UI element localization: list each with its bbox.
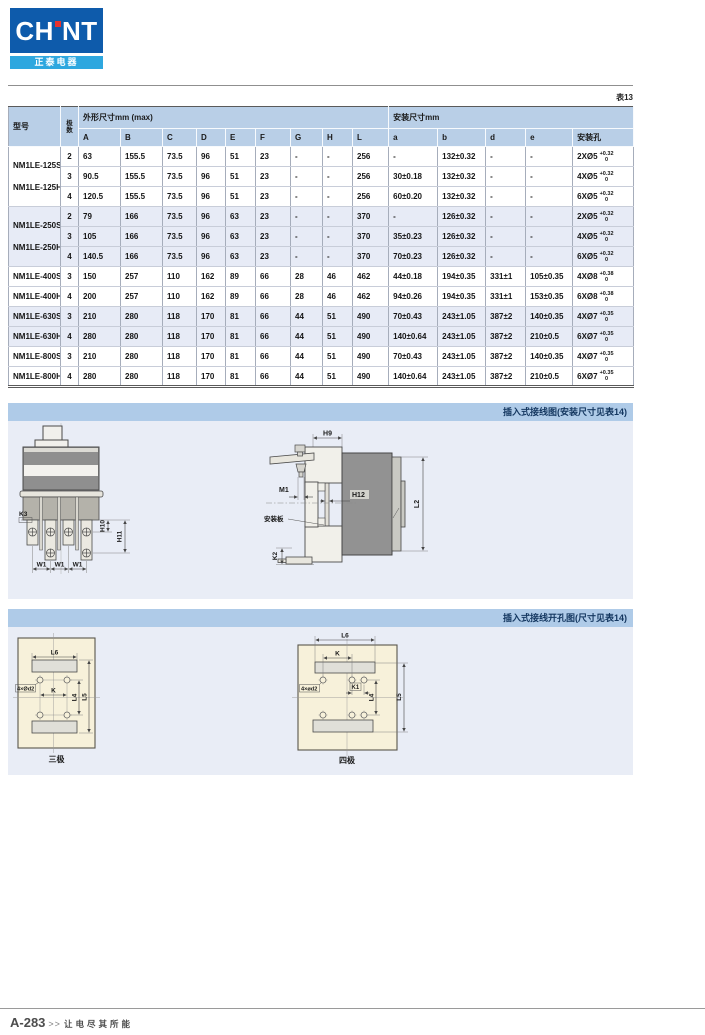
value-cell: 150 bbox=[79, 267, 121, 287]
hole-cell: 4XØ7+0.350 bbox=[573, 307, 634, 327]
value-cell: 490 bbox=[353, 367, 389, 387]
hole-cell: 4XØ5+0.320 bbox=[573, 227, 634, 247]
value-cell: 73.5 bbox=[163, 167, 197, 187]
value-cell: 140±0.35 bbox=[526, 307, 573, 327]
value-cell: 23 bbox=[256, 147, 291, 167]
dim-label-k1: K1 bbox=[352, 685, 360, 691]
value-cell: 200 bbox=[79, 287, 121, 307]
value-cell: 118 bbox=[163, 367, 197, 387]
value-cell: 132±0.32 bbox=[438, 147, 486, 167]
value-cell: 23 bbox=[256, 167, 291, 187]
value-cell: 51 bbox=[226, 147, 256, 167]
value-cell: - bbox=[291, 227, 323, 247]
model-cell: NM1LE-250SNM1LE-250H bbox=[9, 207, 61, 267]
value-cell: 81 bbox=[226, 367, 256, 387]
col-header-poles: 极 数 bbox=[61, 107, 79, 147]
value-cell: - bbox=[323, 167, 353, 187]
model-cell: NM1LE-800H bbox=[9, 367, 61, 387]
value-cell: 63 bbox=[79, 147, 121, 167]
value-cell: 331±1 bbox=[486, 287, 526, 307]
value-cell: 51 bbox=[323, 307, 353, 327]
value-cell: 46 bbox=[323, 267, 353, 287]
value-cell: 63 bbox=[226, 247, 256, 267]
value-cell: 120.5 bbox=[79, 187, 121, 207]
hole-cell: 6XØ7+0.350 bbox=[573, 367, 634, 387]
value-cell: - bbox=[526, 227, 573, 247]
table-row: 310516673.5966323--37035±0.23126±0.32--4… bbox=[9, 227, 634, 247]
value-cell: 166 bbox=[121, 227, 163, 247]
poles-cell: 4 bbox=[61, 247, 79, 267]
value-cell: 73.5 bbox=[163, 247, 197, 267]
value-cell: - bbox=[323, 147, 353, 167]
value-cell: - bbox=[486, 167, 526, 187]
value-cell: 44 bbox=[291, 307, 323, 327]
value-cell: 66 bbox=[256, 327, 291, 347]
hole-cell: 4XØ7+0.350 bbox=[573, 347, 634, 367]
value-cell: 73.5 bbox=[163, 227, 197, 247]
value-cell: 70±0.43 bbox=[389, 307, 438, 327]
col-header-d: d bbox=[486, 129, 526, 147]
hole-cell: 6XØ5+0.320 bbox=[573, 187, 634, 207]
value-cell: 170 bbox=[197, 327, 226, 347]
value-cell: 60±0.20 bbox=[389, 187, 438, 207]
value-cell: - bbox=[486, 247, 526, 267]
value-cell: - bbox=[291, 247, 323, 267]
dim-label-l5: L5 bbox=[396, 693, 403, 701]
value-cell: 155.5 bbox=[121, 187, 163, 207]
value-cell: - bbox=[389, 147, 438, 167]
col-header-a: a bbox=[389, 129, 438, 147]
value-cell: 162 bbox=[197, 287, 226, 307]
value-cell: 280 bbox=[79, 327, 121, 347]
value-cell: 210 bbox=[79, 307, 121, 327]
value-cell: 66 bbox=[256, 347, 291, 367]
dim-label-k2: K2 bbox=[272, 551, 279, 560]
dim-label-d2: 4×Ød2 bbox=[17, 687, 34, 693]
logo-red-dot-icon bbox=[55, 21, 61, 27]
value-cell: 370 bbox=[353, 207, 389, 227]
col-header-H: H bbox=[323, 129, 353, 147]
value-cell: 280 bbox=[121, 347, 163, 367]
value-cell: - bbox=[323, 187, 353, 207]
value-cell: 166 bbox=[121, 207, 163, 227]
value-cell: 44 bbox=[291, 367, 323, 387]
value-cell: 96 bbox=[197, 147, 226, 167]
value-cell: 170 bbox=[197, 367, 226, 387]
value-cell: 140±0.35 bbox=[526, 347, 573, 367]
value-cell: 210±0.5 bbox=[526, 367, 573, 387]
value-cell: 387±2 bbox=[486, 347, 526, 367]
col-header-D: D bbox=[197, 129, 226, 147]
value-cell: 23 bbox=[256, 187, 291, 207]
poles-cell: 2 bbox=[61, 147, 79, 167]
poles-cell: 2 bbox=[61, 207, 79, 227]
value-cell: - bbox=[526, 187, 573, 207]
dim-label-k: K bbox=[51, 688, 56, 695]
dim-label-l2: L2 bbox=[414, 500, 421, 508]
value-cell: - bbox=[526, 247, 573, 267]
value-cell: - bbox=[291, 147, 323, 167]
value-cell: 257 bbox=[121, 267, 163, 287]
value-cell: - bbox=[486, 187, 526, 207]
poles-cell: 4 bbox=[61, 287, 79, 307]
value-cell: 280 bbox=[121, 307, 163, 327]
value-cell: 170 bbox=[197, 307, 226, 327]
value-cell: 166 bbox=[121, 247, 163, 267]
section-title-wiring: 插入式接线图(安装尺寸见表14) bbox=[8, 403, 633, 421]
dim-label-l5: L5 bbox=[82, 693, 89, 701]
table-row: NM1LE-630S32102801181708166445149070±0.4… bbox=[9, 307, 634, 327]
value-cell: 30±0.18 bbox=[389, 167, 438, 187]
dim-label-h9: H9 bbox=[323, 431, 332, 438]
value-cell: 51 bbox=[226, 187, 256, 207]
col-header-e: e bbox=[526, 129, 573, 147]
footer-slogan: 让电尽其所能 bbox=[64, 1019, 133, 1029]
value-cell: - bbox=[323, 247, 353, 267]
value-cell: 96 bbox=[197, 207, 226, 227]
col-header-model: 型号 bbox=[9, 107, 61, 147]
value-cell: 63 bbox=[226, 227, 256, 247]
value-cell: 66 bbox=[256, 307, 291, 327]
value-cell: 89 bbox=[226, 267, 256, 287]
model-cell: NM1LE-800S bbox=[9, 347, 61, 367]
hole-cell: 4XØ8+0.380 bbox=[573, 267, 634, 287]
three-pole-caption: 三极 bbox=[49, 754, 65, 764]
value-cell: - bbox=[291, 167, 323, 187]
table-row: NM1LE-800S32102801181708166445149070±0.4… bbox=[9, 347, 634, 367]
value-cell: 89 bbox=[226, 287, 256, 307]
poles-cell: 3 bbox=[61, 267, 79, 287]
value-cell: 243±1.05 bbox=[438, 347, 486, 367]
value-cell: 162 bbox=[197, 267, 226, 287]
section-title-cutout: 插入式接线开孔图(尺寸见表14) bbox=[8, 609, 633, 627]
breaker-front-view: K3 H10 H11 W1 bbox=[19, 423, 130, 574]
value-cell: 51 bbox=[323, 367, 353, 387]
hole-cell: 4XØ5+0.320 bbox=[573, 167, 634, 187]
value-cell: 118 bbox=[163, 327, 197, 347]
value-cell: 132±0.32 bbox=[438, 167, 486, 187]
value-cell: - bbox=[486, 227, 526, 247]
cutout-diagram-area: L6 K 4×Ød2 L4 L5 三极 bbox=[8, 627, 633, 775]
value-cell: 66 bbox=[256, 287, 291, 307]
value-cell: 140±0.64 bbox=[389, 367, 438, 387]
page-number: A-283 bbox=[10, 1015, 45, 1030]
value-cell: 44 bbox=[291, 347, 323, 367]
value-cell: 35±0.23 bbox=[389, 227, 438, 247]
col-header-B: B bbox=[121, 129, 163, 147]
poles-cell: 4 bbox=[61, 367, 79, 387]
table-row: NM1LE-125SNM1LE-125H263155.573.5965123--… bbox=[9, 147, 634, 167]
value-cell: 243±1.05 bbox=[438, 307, 486, 327]
model-cell: NM1LE-630H bbox=[9, 327, 61, 347]
hole-cell: 6XØ7+0.350 bbox=[573, 327, 634, 347]
value-cell: - bbox=[526, 147, 573, 167]
value-cell: 243±1.05 bbox=[438, 367, 486, 387]
value-cell: 81 bbox=[226, 327, 256, 347]
value-cell: 132±0.32 bbox=[438, 187, 486, 207]
poles-cell: 4 bbox=[61, 187, 79, 207]
value-cell: 23 bbox=[256, 227, 291, 247]
table-row: NM1LE-630H428028011817081664451490140±0.… bbox=[9, 327, 634, 347]
value-cell: 110 bbox=[163, 267, 197, 287]
table-row: 4120.5155.573.5965123--25660±0.20132±0.3… bbox=[9, 187, 634, 207]
brand-subtitle: 正泰电器 bbox=[10, 56, 103, 69]
col-header-A: A bbox=[79, 129, 121, 147]
value-cell: 70±0.23 bbox=[389, 247, 438, 267]
dimensions-table: 型号 极 数 外形尺寸mm (max) 安装尺寸mm A B C D E F G bbox=[8, 106, 634, 388]
value-cell: 280 bbox=[79, 367, 121, 387]
value-cell: 126±0.32 bbox=[438, 227, 486, 247]
value-cell: 81 bbox=[226, 307, 256, 327]
brand-text: CHNT bbox=[15, 18, 97, 44]
value-cell: 118 bbox=[163, 307, 197, 327]
value-cell: - bbox=[389, 207, 438, 227]
value-cell: 140.5 bbox=[79, 247, 121, 267]
value-cell: 81 bbox=[226, 347, 256, 367]
value-cell: - bbox=[323, 207, 353, 227]
value-cell: 46 bbox=[323, 287, 353, 307]
dim-label-k3: K3 bbox=[19, 511, 28, 518]
table-row: NM1LE-250SNM1LE-250H27916673.5966323--37… bbox=[9, 207, 634, 227]
value-cell: 194±0.35 bbox=[438, 287, 486, 307]
table-row: 390.5155.573.5965123--25630±0.18132±0.32… bbox=[9, 167, 634, 187]
table-header: 型号 极 数 外形尺寸mm (max) 安装尺寸mm A B C D E F G bbox=[9, 107, 634, 147]
value-cell: 66 bbox=[256, 367, 291, 387]
col-header-b: b bbox=[438, 129, 486, 147]
model-cell: NM1LE-125SNM1LE-125H bbox=[9, 147, 61, 207]
wiring-diagram-area: K3 H10 H11 W1 bbox=[8, 421, 633, 599]
dimensions-table-tbody: NM1LE-125SNM1LE-125H263155.573.5965123--… bbox=[9, 147, 634, 387]
value-cell: 105±0.35 bbox=[526, 267, 573, 287]
value-cell: 210±0.5 bbox=[526, 327, 573, 347]
value-cell: 73.5 bbox=[163, 187, 197, 207]
value-cell: 105 bbox=[79, 227, 121, 247]
wiring-diagram-svg: K3 H10 H11 W1 bbox=[8, 421, 633, 599]
value-cell: 256 bbox=[353, 187, 389, 207]
value-cell: - bbox=[291, 207, 323, 227]
poles-cell: 3 bbox=[61, 227, 79, 247]
chevrons-icon: >> bbox=[48, 1019, 61, 1029]
dim-label-k: K bbox=[335, 651, 340, 658]
catalog-page: CHNT 正泰电器 表13 型号 极 数 外形尺寸mm (max) bbox=[0, 0, 705, 1035]
value-cell: 370 bbox=[353, 227, 389, 247]
value-cell: 96 bbox=[197, 167, 226, 187]
value-cell: 70±0.43 bbox=[389, 347, 438, 367]
four-pole-cutout: L6 K 4×ød2 bbox=[292, 633, 408, 766]
col-header-G: G bbox=[291, 129, 323, 147]
value-cell: 462 bbox=[353, 287, 389, 307]
value-cell: 170 bbox=[197, 347, 226, 367]
col-header-E: E bbox=[226, 129, 256, 147]
hole-cell: 6XØ8+0.380 bbox=[573, 287, 634, 307]
value-cell: 51 bbox=[323, 347, 353, 367]
value-cell: 155.5 bbox=[121, 167, 163, 187]
table-row: NM1LE-400H42002571101628966284646294±0.2… bbox=[9, 287, 634, 307]
page-footer: A-283>>让电尽其所能 bbox=[10, 1014, 410, 1032]
hole-cell: 2XØ5+0.320 bbox=[573, 147, 634, 167]
value-cell: 490 bbox=[353, 307, 389, 327]
breaker-side-view: H9 M1 bbox=[264, 431, 428, 565]
value-cell: 90.5 bbox=[79, 167, 121, 187]
hole-cell: 2XØ5+0.320 bbox=[573, 207, 634, 227]
value-cell: 331±1 bbox=[486, 267, 526, 287]
value-cell: 210 bbox=[79, 347, 121, 367]
three-pole-cutout: L6 K 4×Ød2 L4 L5 三极 bbox=[13, 633, 100, 764]
model-cell: NM1LE-400S bbox=[9, 267, 61, 287]
value-cell: 44±0.18 bbox=[389, 267, 438, 287]
value-cell: - bbox=[526, 207, 573, 227]
value-cell: 73.5 bbox=[163, 207, 197, 227]
value-cell: 23 bbox=[256, 247, 291, 267]
value-cell: 256 bbox=[353, 167, 389, 187]
col-header-L: L bbox=[353, 129, 389, 147]
value-cell: 73.5 bbox=[163, 147, 197, 167]
value-cell: 63 bbox=[226, 207, 256, 227]
value-cell: 387±2 bbox=[486, 367, 526, 387]
poles-cell: 3 bbox=[61, 167, 79, 187]
value-cell: 153±0.35 bbox=[526, 287, 573, 307]
value-cell: 94±0.26 bbox=[389, 287, 438, 307]
value-cell: - bbox=[486, 207, 526, 227]
value-cell: 28 bbox=[291, 267, 323, 287]
dim-label-h11: H11 bbox=[117, 530, 124, 542]
dim-label-w1: W1 bbox=[73, 562, 83, 569]
value-cell: 140±0.64 bbox=[389, 327, 438, 347]
dim-label-l4: L4 bbox=[72, 693, 79, 701]
cutout-diagram-svg: L6 K 4×Ød2 L4 L5 三极 bbox=[8, 627, 633, 775]
four-pole-caption: 四极 bbox=[339, 755, 355, 765]
model-cell: NM1LE-630S bbox=[9, 307, 61, 327]
dim-label-l6: L6 bbox=[51, 650, 59, 657]
value-cell: 370 bbox=[353, 247, 389, 267]
mounting-plate-label: 安装板 bbox=[264, 514, 284, 523]
value-cell: 28 bbox=[291, 287, 323, 307]
dim-label-l6: L6 bbox=[341, 633, 349, 640]
value-cell: - bbox=[526, 167, 573, 187]
col-header-F: F bbox=[256, 129, 291, 147]
value-cell: 194±0.35 bbox=[438, 267, 486, 287]
value-cell: 280 bbox=[121, 367, 163, 387]
poles-cell: 3 bbox=[61, 307, 79, 327]
value-cell: 51 bbox=[226, 167, 256, 187]
value-cell: - bbox=[291, 187, 323, 207]
value-cell: 23 bbox=[256, 207, 291, 227]
hole-cell: 6XØ5+0.320 bbox=[573, 247, 634, 267]
value-cell: 96 bbox=[197, 187, 226, 207]
dim-label-l4: L4 bbox=[369, 693, 376, 701]
value-cell: - bbox=[486, 147, 526, 167]
value-cell: 118 bbox=[163, 347, 197, 367]
value-cell: 126±0.32 bbox=[438, 247, 486, 267]
value-cell: 462 bbox=[353, 267, 389, 287]
value-cell: 66 bbox=[256, 267, 291, 287]
poles-cell: 4 bbox=[61, 327, 79, 347]
value-cell: 110 bbox=[163, 287, 197, 307]
value-cell: 79 bbox=[79, 207, 121, 227]
chint-logo: CHNT bbox=[10, 8, 103, 53]
col-header-hole: 安装孔 bbox=[573, 129, 634, 147]
value-cell: 96 bbox=[197, 247, 226, 267]
value-cell: 155.5 bbox=[121, 147, 163, 167]
value-cell: 280 bbox=[121, 327, 163, 347]
value-cell: 257 bbox=[121, 287, 163, 307]
dim-label-d2: 4×ød2 bbox=[301, 687, 317, 693]
value-cell: 243±1.05 bbox=[438, 327, 486, 347]
header-divider bbox=[8, 85, 633, 86]
value-cell: 490 bbox=[353, 347, 389, 367]
table-row: 4140.516673.5966323--37070±0.23126±0.32-… bbox=[9, 247, 634, 267]
value-cell: 51 bbox=[323, 327, 353, 347]
col-group-outline: 外形尺寸mm (max) bbox=[79, 107, 389, 129]
dim-label-w1: W1 bbox=[55, 562, 65, 569]
model-cell: NM1LE-400H bbox=[9, 287, 61, 307]
value-cell: 387±2 bbox=[486, 327, 526, 347]
footer-divider bbox=[0, 1008, 705, 1009]
table-row: NM1LE-800H428028011817081664451490140±0.… bbox=[9, 367, 634, 387]
value-cell: 387±2 bbox=[486, 307, 526, 327]
value-cell: 96 bbox=[197, 227, 226, 247]
table-number-label: 表13 bbox=[8, 92, 633, 103]
value-cell: 126±0.32 bbox=[438, 207, 486, 227]
value-cell: 256 bbox=[353, 147, 389, 167]
col-group-mounting: 安装尺寸mm bbox=[389, 107, 634, 129]
poles-cell: 3 bbox=[61, 347, 79, 367]
dim-label-w1: W1 bbox=[37, 562, 47, 569]
dim-label-h10: H10 bbox=[100, 520, 107, 532]
value-cell: 44 bbox=[291, 327, 323, 347]
value-cell: 490 bbox=[353, 327, 389, 347]
table-row: NM1LE-400S31502571101628966284646244±0.1… bbox=[9, 267, 634, 287]
dim-label-m1: M1 bbox=[279, 487, 289, 494]
col-header-C: C bbox=[163, 129, 197, 147]
dim-label-h12: H12 bbox=[352, 492, 365, 499]
value-cell: - bbox=[323, 227, 353, 247]
